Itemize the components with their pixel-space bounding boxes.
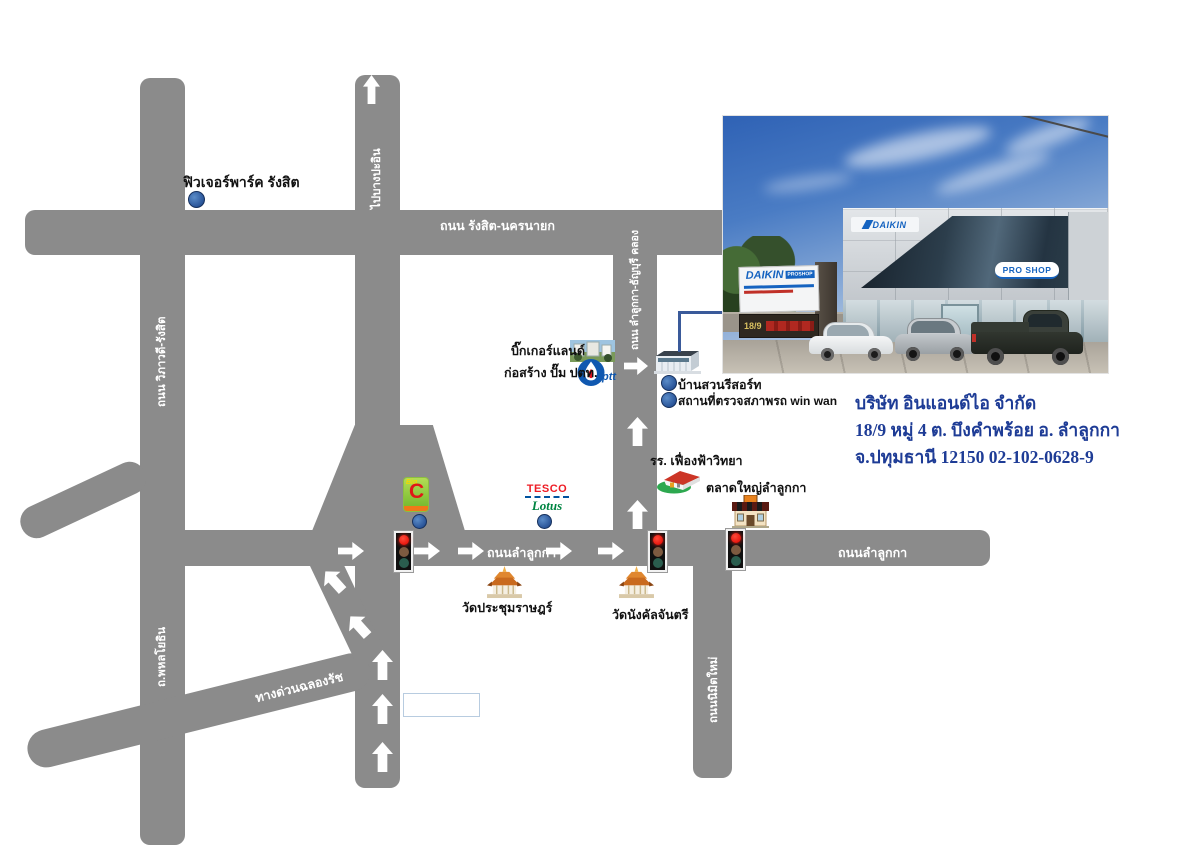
label-nimit-mai: ถนนนิมิตใหม่: [705, 652, 723, 728]
photo-connector-v: [678, 311, 681, 352]
bigger-land-label: บิ๊กเกอร์แลนด์: [511, 341, 585, 361]
pylon-lower-sign: 18/9: [739, 314, 819, 338]
junction-flare: [312, 425, 465, 531]
cloud: [933, 146, 1053, 200]
pylon-red-line: [744, 290, 793, 294]
storefront-photo: DAIKIN PRO SHOP DAIKIN PROSHOP 18/9: [722, 115, 1109, 374]
red-lamp: [653, 535, 663, 545]
dark-pickup-truck: [971, 310, 1083, 366]
road-chalong-rat-expressway: ทางด่วนฉลองรัช: [23, 649, 374, 771]
cloud: [762, 170, 853, 196]
big-c-dot: [412, 514, 427, 529]
ptt-station-label: ก่อสร้าง ปั๊ม ปตท.: [504, 363, 597, 383]
vehicle-inspection-label: สถานที่ตรวจสภาพรถ win wan: [678, 392, 837, 411]
daikin-building-logo-text: DAIKIN: [873, 220, 907, 230]
tesco-lotus-logo: TESCO Lotus: [523, 484, 571, 512]
company-address-line1: 18/9 หมู่ 4 ต. บึงคำพร้อย อ. ลำลูกกา: [855, 417, 1120, 444]
pylon-daikin-text: DAIKIN: [745, 269, 783, 282]
baan-suan-dot-1: [661, 375, 677, 391]
pylon-proshop-text: PROSHOP: [785, 270, 814, 279]
pro-shop-sign: PRO SHOP: [995, 262, 1059, 279]
company-address-line2: จ.ปทุมธานี 12150 02-102-0628-9: [855, 444, 1120, 471]
company-building-icon: [654, 349, 701, 376]
temple-nangkhan-chantri-icon: [614, 566, 659, 599]
label-lamlukka-east: ถนนลำลูกกา: [838, 543, 907, 563]
school-label: รร. เฟื่องฟ้าวิทยา: [650, 451, 743, 471]
lotus-text: Lotus: [523, 499, 571, 512]
pro-shop-text: PRO SHOP: [1003, 265, 1052, 275]
expressway-label: ทางด่วนฉลองรัช: [253, 667, 345, 708]
road-left-branch: [15, 456, 151, 543]
label-to-bang-pa-in: ไปบางปะอิน: [368, 148, 386, 210]
baan-suan-dot-2: [661, 392, 677, 408]
amber-lamp: [399, 547, 409, 557]
cloud: [842, 119, 994, 176]
company-info: บริษัท อินแอนด์ไอ จำกัด 18/9 หมู่ 4 ต. บ…: [855, 390, 1120, 471]
tesco-text: TESCO: [523, 484, 571, 495]
school-icon: [656, 468, 703, 494]
big-c-logo: Big C: [404, 478, 428, 511]
market-label: ตลาดใหญ่ลำลูกกา: [706, 478, 806, 498]
empty-label-box: [403, 693, 480, 717]
market-shop-icon: [730, 495, 771, 528]
big-c-c-text: C: [409, 480, 424, 504]
label-rangsit-nakhonnayok: ถนน รังสิต-นครนายก: [440, 216, 555, 236]
tesco-dot: [537, 514, 552, 529]
traffic-light-3: [726, 529, 745, 570]
pylon-blue-line: [744, 284, 814, 289]
future-park-label: ฟิวเจอร์พาร์ค รังสิต: [183, 172, 300, 194]
green-lamp: [731, 556, 741, 566]
daikin-building-sign: DAIKIN: [851, 217, 919, 232]
temple-nangkhan-chantri-label: วัดนังคัลจันตรี: [612, 605, 689, 625]
amber-lamp: [731, 545, 741, 555]
ptt-wordmark: ptt: [602, 371, 616, 383]
amber-lamp: [653, 547, 663, 557]
daikin-slash-icon: [861, 220, 873, 229]
pylon-red-banner: [766, 321, 814, 331]
label-lamlukka-thanyaburi: ถนน ลำลูกกา-ธัญบุรี คลอง: [626, 240, 643, 350]
photo-connector-h: [678, 311, 722, 314]
silver-sedan: [895, 318, 975, 360]
white-sedan: [809, 322, 893, 358]
label-viphavadi: ถนน วิภาวดี-รังสิต: [153, 322, 171, 407]
traffic-light-1: [394, 531, 413, 572]
big-c-strip: [404, 506, 428, 511]
red-lamp: [731, 533, 741, 543]
red-lamp: [399, 535, 409, 545]
pylon-board: DAIKIN PROSHOP: [738, 265, 819, 313]
pylon-number-text: 18/9: [744, 321, 762, 331]
company-name: บริษัท อินแอนด์ไอ จำกัด: [855, 390, 1120, 417]
label-lamlukka-center: ถนนลำลูกกา: [487, 543, 556, 563]
direction-map-page: ทางด่วนฉลองรัช ถนน รังสิต-นครนายก ไปบางป…: [0, 0, 1200, 854]
temple-prachum-rat-label: วัดประชุมราษฎร์: [462, 598, 552, 618]
label-phahonyothin: ถ.พหลโยธิน: [153, 626, 171, 688]
temple-prachum-rat-icon: [483, 566, 526, 599]
green-lamp: [399, 558, 409, 568]
